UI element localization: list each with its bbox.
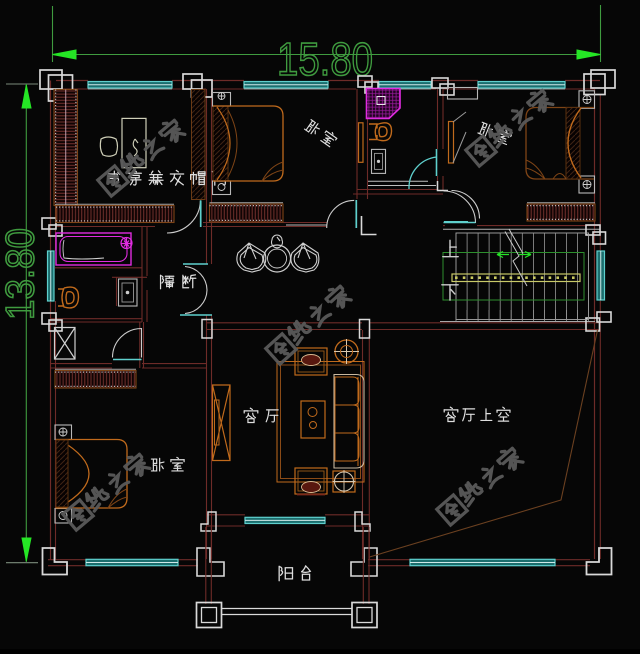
svg-text:13.80: 13.80 (0, 228, 43, 320)
